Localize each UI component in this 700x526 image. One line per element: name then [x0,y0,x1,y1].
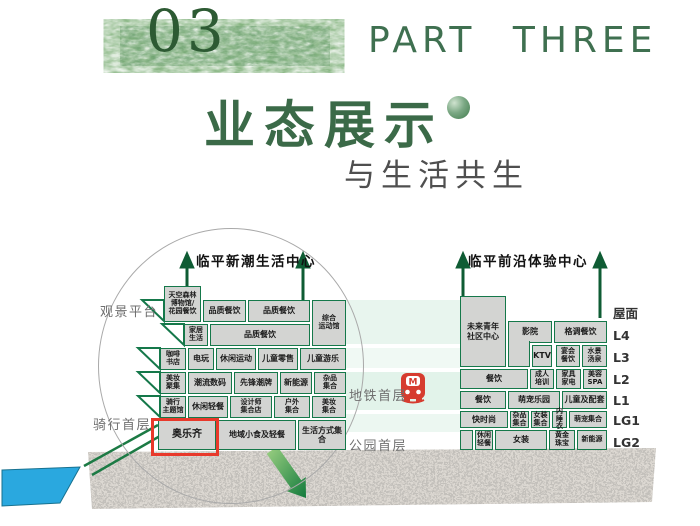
floor-label-LG1: LG1 [613,413,640,428]
building-title: 临平新潮生活中心 [196,250,316,270]
unit-cell: 休闲 轻餐 [475,430,493,450]
unit-cell: 儿童及配套 [562,391,607,409]
unit-cell: 萌宠乐园 [508,391,560,409]
unit-cell: 格调餐饮 [554,321,607,343]
unit-cell: 宴会 餐饮 [556,345,580,367]
unit-cell: 内 睡衣 [552,411,567,428]
floor-label-L4: L4 [613,328,630,343]
unit-cell: 电玩 [188,348,214,370]
unit-cell: 美妆 聚集 [160,372,186,394]
buildings-diagram: M 屋面L4L3L2L1LG1LG2观景平台骑行首层地铁首层公园首层临平新潮生活… [0,0,700,526]
unit-cell: 杂品 集合 [510,411,529,428]
aldi-highlight-box [151,418,219,456]
unit-cell [508,341,530,367]
unit-cell: 新能源 [280,372,312,394]
unit-cell: 咖啡 书店 [160,348,186,370]
unit-cell: 女装 [495,430,547,450]
unit-cell: 美容 SPA [583,369,607,389]
unit-cell: 快时尚 [460,411,508,428]
floor-label-L1: L1 [613,393,630,408]
unit-cell: KTV [532,345,552,367]
unit-cell: 萌宠集合 [569,411,607,428]
unit-cell: 成人 培训 [530,369,554,389]
building-title: 临平前沿体验中心 [468,250,588,270]
unit-cell: 生活方式集合 [298,420,346,450]
unit-cell: 综合 运动馆 [312,300,346,346]
floor-label-L3: L3 [613,350,630,365]
unit-cell: 餐饮 [460,391,506,409]
side-label: 公园首层 [349,435,407,454]
unit-cell [460,430,473,450]
unit-cell: 儿童游乐 [300,348,346,370]
side-label: 观景平台 [100,301,158,320]
svg-text:M: M [409,378,418,388]
slide-canvas: 03 PART THREE 业态展示 与生活共生 [0,0,700,526]
unit-cell: 户外 集合 [274,396,310,418]
unit-cell: 影院 [508,321,552,343]
floor-label-屋面: 屋面 [613,303,638,322]
unit-cell: 杂品 集合 [314,372,346,394]
unit-cell: 家具 家电 [556,369,581,389]
side-label: 骑行首层 [93,414,151,433]
floor-label-LG2: LG2 [613,435,640,450]
unit-cell: 休闲轻餐 [188,396,228,418]
unit-cell: 设计师 集合店 [230,396,272,418]
unit-cell: 女装 集合 [531,411,550,428]
unit-cell: 休闲运动 [216,348,256,370]
unit-cell: 黄金 珠宝 [549,430,575,450]
unit-cell: 地域小食及轻餐 [218,420,296,450]
unit-cell: 天空森林 博物馆/ 花园餐饮 [164,286,201,322]
side-label: 地铁首层 [349,385,407,404]
unit-cell: 未来青年 社区中心 [460,296,506,367]
unit-cell: 美妆 集合 [312,396,346,418]
unit-cell: 品质餐饮 [203,300,246,322]
unit-cell: 餐饮 [460,369,528,389]
floor-label-L2: L2 [613,372,630,387]
unit-cell: 儿童零售 [258,348,298,370]
unit-cell: 新能源 [577,430,607,450]
unit-cell: 品质餐饮 [248,300,310,322]
unit-cell: 先锋潮牌 [234,372,278,394]
unit-cell: 品质餐饮 [210,324,310,346]
unit-cell: 水景 汤泉 [582,345,607,367]
unit-cell: 骑行 主题馆 [160,396,186,418]
unit-cell: 潮流数码 [188,372,232,394]
unit-cell: 家居 生活 [184,324,208,346]
